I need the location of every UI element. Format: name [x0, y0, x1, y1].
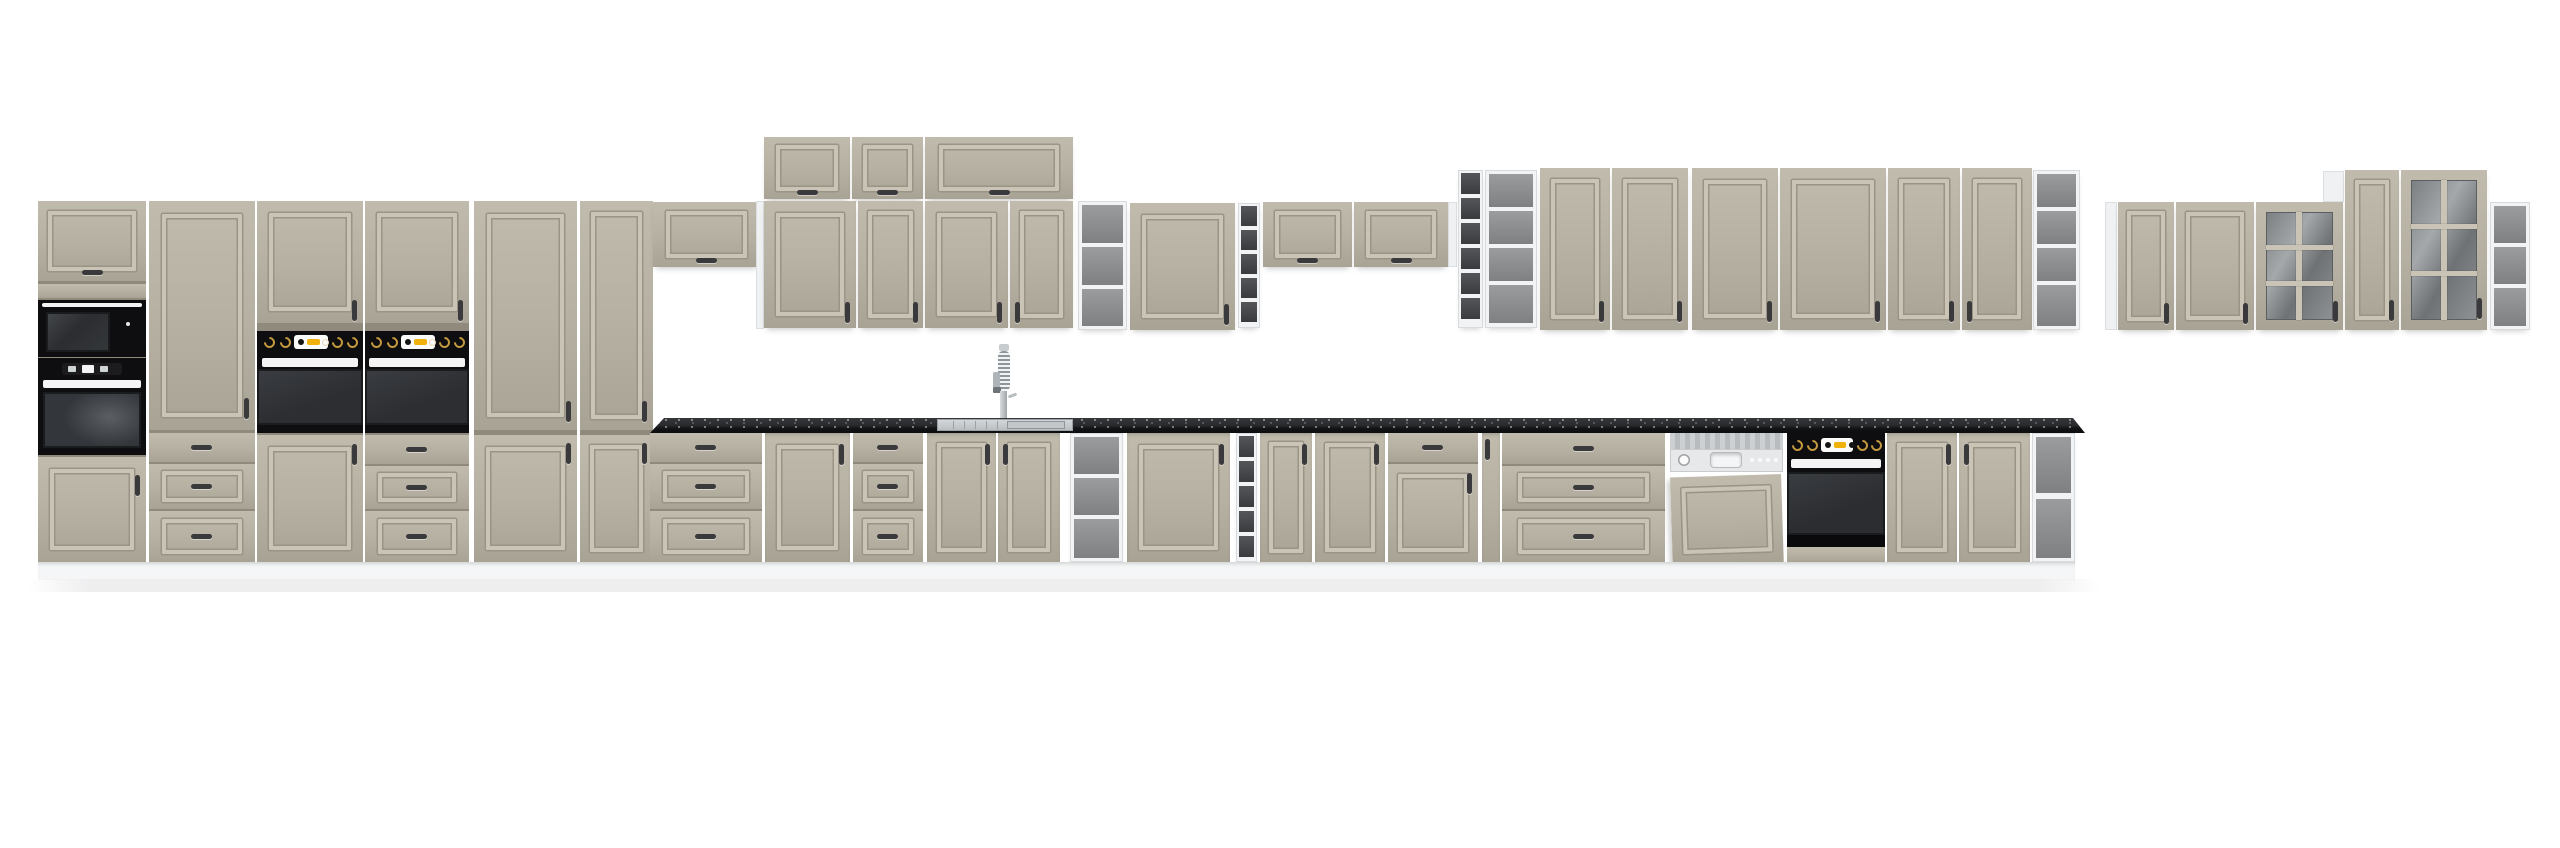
shelf-cell: [1082, 205, 1123, 243]
shelf-cell: [1241, 206, 1257, 226]
glass-mullion: [2266, 281, 2333, 286]
shelf-cell: [1489, 174, 1533, 207]
shelf-cell: [1239, 461, 1254, 482]
drawer: [365, 435, 469, 464]
drawer: [650, 464, 762, 509]
door-handle: [2389, 300, 2394, 321]
door-handle: [244, 398, 249, 419]
faucet-body: [1000, 391, 1007, 418]
door-handle: [1677, 301, 1682, 322]
shelf-cell: [1239, 486, 1254, 507]
larder-column: [474, 201, 577, 562]
oven-handle-bar: [369, 358, 465, 367]
drawer-handle: [877, 534, 898, 539]
dishwasher-furniture-panel: [1670, 474, 1784, 565]
wall-open-shelf: [1078, 201, 1127, 330]
wall-open-tower-narrow: [1458, 170, 1483, 328]
plinth: [38, 562, 2075, 580]
shelf-cell: [1239, 436, 1254, 457]
oven-knob: [1855, 438, 1871, 454]
door-handle: [1485, 439, 1490, 460]
base-open-tower-narrow: [1236, 433, 1257, 562]
door-handle: [2333, 301, 2338, 322]
drawer: [365, 511, 469, 562]
wall-door-tall: [1612, 168, 1688, 330]
base-drawer-unit: [853, 433, 923, 562]
faucet-lever: [1008, 393, 1017, 399]
door-handle: [1964, 444, 1969, 465]
cabinet-door: [257, 201, 363, 323]
drawer-handle: [191, 484, 212, 489]
base-door: [1260, 433, 1312, 562]
glass-wall-door: [2256, 202, 2343, 330]
base-door-wide: [1127, 433, 1230, 562]
drawer-handle: [191, 445, 212, 450]
shelf-cell: [1074, 437, 1119, 474]
wall-open-tower: [1485, 170, 1537, 328]
base-drawer-door-unit: [1388, 433, 1478, 562]
base-drawer-unit-wide: [1502, 433, 1665, 562]
wall-flip-cabinet: [1354, 202, 1448, 267]
display-segment: [100, 366, 108, 372]
dishwasher-control-panel: [1670, 449, 1783, 472]
oven-door: [365, 369, 469, 425]
oven-handle-bar: [262, 358, 358, 367]
door-handle: [2477, 298, 2482, 319]
cabinet-door: [257, 435, 363, 562]
drawer-handle: [191, 534, 212, 539]
faucet-cap: [999, 344, 1009, 351]
control-dot: [1825, 442, 1831, 448]
door-handle: [1302, 444, 1307, 465]
indicator-dot: [1766, 458, 1770, 462]
control-dot: [405, 339, 411, 345]
wall-door-tall: [1540, 168, 1610, 330]
wall-door: [1010, 201, 1073, 328]
shelf-cell: [1241, 230, 1257, 250]
control-dot: [322, 339, 329, 346]
cabinet-door: [474, 435, 577, 562]
shelf-cell: [1489, 211, 1533, 244]
wall-door-tall: [1888, 168, 1960, 330]
wall-door: [925, 201, 1008, 328]
shelf-cell: [1461, 223, 1480, 244]
base-drawer-unit: [650, 433, 762, 562]
panel-handle-recess: [1711, 453, 1741, 467]
dishwasher-top-trim: [1670, 433, 1783, 449]
side-panel: [756, 201, 764, 329]
tall-appliance-column: [38, 201, 146, 562]
door-handle: [566, 401, 571, 422]
glass-mullion: [2411, 271, 2477, 276]
shelf-cell: [2494, 206, 2526, 243]
door-handle: [1391, 258, 1412, 263]
wall-top-box: [852, 137, 923, 199]
drawer-handle: [695, 534, 716, 539]
shelf-cell: [2037, 211, 2076, 244]
shelf-cell: [2036, 499, 2071, 558]
kitchen-render: [0, 0, 2560, 848]
microwave: [38, 300, 146, 357]
drawer: [1388, 433, 1478, 462]
base-filler-door: [1482, 433, 1500, 562]
door-handle: [642, 443, 647, 464]
oven-housing-column: [365, 201, 469, 562]
glass-mullion: [2411, 224, 2477, 229]
control-dot: [1849, 442, 1855, 448]
drawer-handle: [877, 484, 898, 489]
wall-door-tall: [1780, 168, 1886, 330]
oven-display: [414, 339, 427, 345]
floor-shadow: [28, 579, 2100, 592]
drawer: [149, 433, 255, 462]
drawer: [650, 511, 762, 562]
wall-open-shelf: [2490, 202, 2530, 330]
microwave-window: [46, 312, 110, 352]
faucet: [993, 344, 1023, 418]
door-handle: [642, 401, 647, 422]
sink-base-door: [998, 433, 1060, 562]
door-handle: [696, 258, 717, 263]
cabinet-door: [38, 457, 146, 562]
door-handle: [1946, 444, 1951, 465]
wall-door-tall: [1692, 168, 1778, 330]
side-panel: [2323, 171, 2344, 202]
power-button: [1678, 454, 1690, 466]
shelf-cell: [1082, 247, 1123, 285]
door-handle: [1949, 301, 1954, 322]
drawer-handle: [1422, 445, 1443, 450]
drawer-handle: [1573, 485, 1594, 490]
door-handle: [1297, 258, 1318, 263]
wall-oven: [257, 331, 363, 433]
drawer-handle: [695, 445, 716, 450]
tall-door-drawer-column: [149, 201, 255, 562]
glass-mullion: [2296, 212, 2302, 320]
wall-open-shelf: [2033, 170, 2080, 330]
microwave-button: [126, 322, 130, 326]
display-segment: [68, 366, 76, 372]
indicator-dot: [1750, 458, 1754, 462]
drawer: [149, 464, 255, 509]
drawer: [853, 464, 923, 509]
shelf-cell: [1239, 511, 1254, 532]
oven-display: [1834, 442, 1846, 448]
faucet-spout: [993, 372, 1000, 388]
door-handle: [985, 444, 990, 465]
shelf-cell: [1461, 198, 1480, 219]
wall-top-box: [764, 137, 850, 199]
oven-knob: [262, 335, 278, 351]
base-door: [1959, 433, 2030, 562]
door-handle: [797, 190, 818, 195]
drawer-handle: [406, 534, 427, 539]
shelf-cell: [2494, 288, 2526, 326]
door-handle: [839, 444, 844, 465]
wall-top-box: [925, 137, 1073, 199]
wall-door: [858, 201, 923, 328]
tall-door: [474, 201, 577, 430]
oven-knob: [1869, 438, 1885, 454]
door-handle: [458, 300, 463, 321]
wall-door: [1130, 203, 1235, 330]
glass-mullion: [2441, 180, 2447, 320]
drawer: [1502, 466, 1665, 509]
cabinet-door: [580, 435, 653, 562]
door-handle: [1467, 473, 1472, 494]
oven-knob: [278, 335, 294, 351]
door-handle: [1875, 301, 1880, 322]
door-handle: [877, 190, 898, 195]
side-panel: [1448, 202, 1457, 267]
door-handle: [135, 475, 140, 496]
drawer: [853, 511, 923, 562]
wall-door-tall: [2345, 170, 2399, 330]
shelf-cell: [2494, 247, 2526, 284]
oven-door: [257, 369, 363, 425]
door-handle: [1599, 301, 1604, 322]
oven-knob: [437, 335, 453, 351]
oven-display: [307, 339, 320, 345]
door-handle: [82, 270, 103, 275]
door-handle: [1003, 444, 1008, 465]
drawer: [149, 511, 255, 562]
door-handle: [2243, 303, 2248, 324]
dishwasher: [1670, 433, 1783, 562]
door-handle: [1224, 304, 1229, 325]
drawer-handle: [877, 445, 898, 450]
oven-knob: [369, 335, 385, 351]
filler-panel: [38, 284, 146, 298]
base-door: [1887, 433, 1957, 562]
door-handle: [1015, 302, 1020, 323]
microwave-trim: [42, 303, 142, 307]
oven-knob: [330, 335, 346, 351]
compact-oven: [38, 358, 146, 455]
door-handle: [1967, 301, 1972, 322]
shelf-cell: [2037, 248, 2076, 281]
filler-strip: [1787, 547, 1885, 562]
drawer: [365, 466, 469, 509]
base-open-shelf-end: [2032, 433, 2075, 562]
wall-door: [764, 201, 856, 328]
door-handle: [352, 300, 357, 321]
base-door: [1315, 433, 1385, 562]
cabinet-door: [1388, 464, 1478, 562]
flip-door: [38, 201, 146, 281]
base-open-shelf: [1070, 433, 1123, 562]
countertop: [650, 418, 2085, 433]
shelf-cell: [1461, 173, 1480, 194]
drawer-handle: [406, 447, 427, 452]
sink-drainer: [943, 421, 999, 429]
door-handle: [845, 302, 850, 323]
shelf-cell: [1082, 289, 1123, 326]
door-handle: [1219, 444, 1224, 465]
oven-door: [1787, 472, 1885, 535]
door-handle: [1374, 444, 1379, 465]
wall-oven: [365, 331, 469, 433]
oven-housing-column: [257, 201, 363, 562]
shelf-cell: [1489, 285, 1533, 323]
oven-knob: [345, 335, 361, 351]
sink: [937, 419, 1073, 431]
door-handle: [2164, 303, 2169, 324]
shelf-cell: [1241, 254, 1257, 274]
tall-door: [149, 201, 255, 430]
door-handle: [989, 190, 1010, 195]
shelf-cell: [1074, 478, 1119, 515]
door-handle: [1767, 301, 1772, 322]
control-dot: [298, 339, 304, 345]
wall-flip-cabinet: [1263, 202, 1352, 267]
oven-knob: [1805, 438, 1821, 454]
shelf-cell: [1461, 248, 1480, 269]
drawer: [853, 433, 923, 462]
oven-handle-bar: [43, 380, 141, 388]
shelf-cell: [2036, 437, 2071, 493]
shelf-cell: [1241, 302, 1257, 322]
oven-window: [43, 392, 141, 448]
control-dot: [429, 339, 436, 346]
door-handle: [997, 302, 1002, 323]
drawer-handle: [1573, 534, 1594, 539]
indicator-dot: [1774, 458, 1778, 462]
glass-mullion: [2266, 245, 2333, 250]
drawer: [650, 433, 762, 462]
drawer: [1502, 433, 1665, 464]
display-segment: [82, 365, 94, 373]
shelf-cell: [2037, 285, 2076, 326]
shelf-cell: [1241, 278, 1257, 298]
under-counter-oven: [1787, 433, 1885, 562]
glass-wall-door-tall: [2401, 170, 2487, 330]
base-door: [765, 433, 850, 562]
shelf-cell: [1074, 519, 1119, 558]
drawer-handle: [1573, 446, 1594, 451]
shelf-cell: [1239, 536, 1254, 557]
shelf-cell: [1489, 248, 1533, 281]
shelf-cell: [2037, 174, 2076, 207]
wall-door: [2176, 202, 2254, 330]
shelf-cell: [1461, 298, 1480, 319]
oven-knob: [385, 335, 401, 351]
tall-door: [580, 201, 653, 430]
oven-knob: [1790, 438, 1806, 454]
wall-open-tower-narrow: [1238, 203, 1260, 328]
door-handle: [352, 444, 357, 465]
side-panel: [2105, 202, 2117, 330]
larder-column: [580, 201, 653, 562]
wall-door-tall: [1962, 168, 2032, 330]
sink-bowl: [1007, 421, 1065, 429]
drawer-handle: [406, 485, 427, 490]
door-handle: [913, 302, 918, 323]
drawer-handle: [695, 484, 716, 489]
wall-flip-cabinet: [653, 202, 760, 267]
oven-bottom-trim: [1787, 535, 1885, 547]
shelf-cell: [1461, 273, 1480, 294]
sink-base-door: [927, 433, 996, 562]
cabinet-door: [365, 201, 469, 323]
oven-knob: [452, 335, 468, 351]
oven-handle-bar: [1791, 459, 1881, 468]
drawer: [1502, 511, 1665, 562]
wall-door: [2118, 202, 2174, 330]
door-handle: [566, 443, 571, 464]
indicator-dot: [1758, 458, 1762, 462]
